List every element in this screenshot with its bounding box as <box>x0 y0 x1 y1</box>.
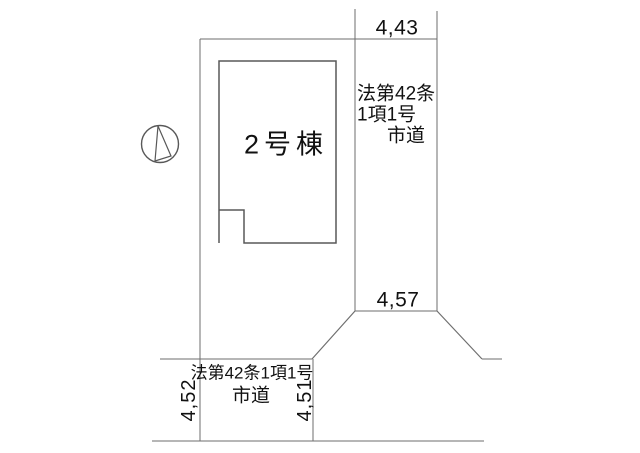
right-road-law-label-line1: 法第42条 <box>357 85 435 104</box>
dimension-bottom-road-width-left: 4,52 <box>179 379 199 422</box>
corner-splay-right-line <box>437 311 482 359</box>
building-label: 2号棟 <box>244 132 328 159</box>
right-road-type-label: 市道 <box>387 127 425 146</box>
corner-splay-left-line <box>312 311 355 359</box>
site-plan-diagram: 4,43 法第42条 1項1号 市道 2号棟 4,57 法第42条1項1号 市道… <box>0 0 640 453</box>
right-road-law-label-line2: 1項1号 <box>357 106 416 125</box>
dimension-right-road-bottom-width: 4,57 <box>377 290 420 311</box>
north-arrow-icon <box>142 126 179 163</box>
plot-drawing <box>0 0 640 453</box>
dimension-bottom-road-width-right: 4,51 <box>295 379 315 422</box>
bottom-road-type-label: 市道 <box>232 387 270 406</box>
dimension-top-road-width: 4,43 <box>376 18 419 39</box>
